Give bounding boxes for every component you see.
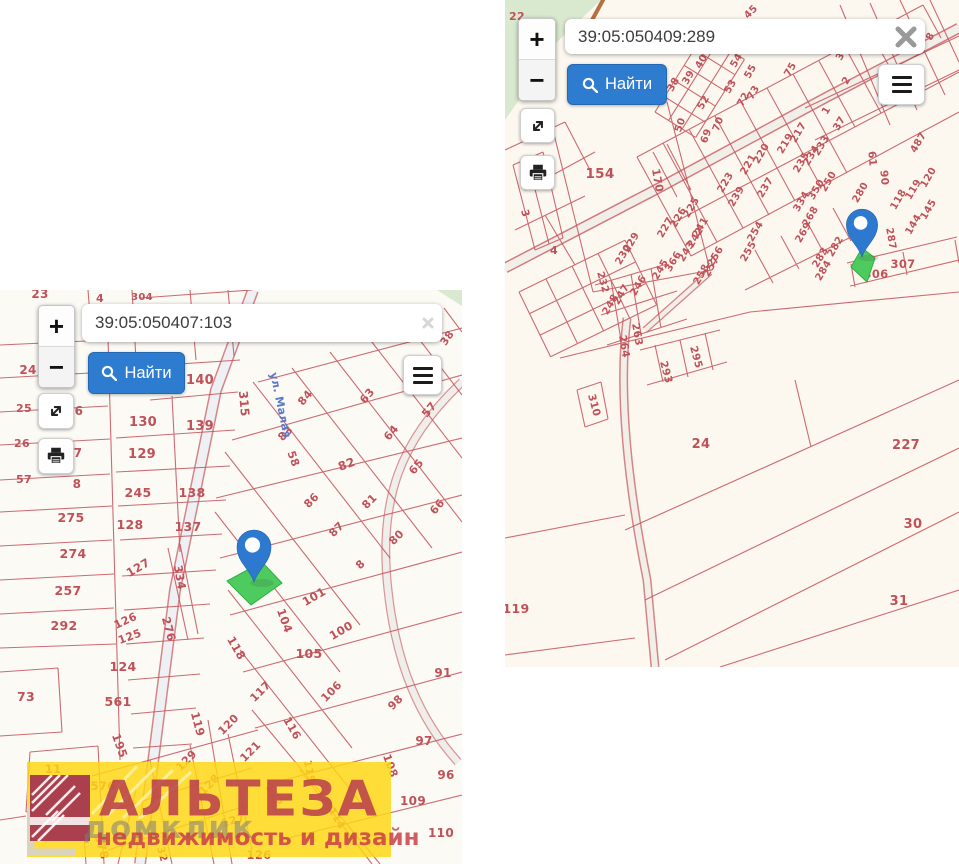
zoom-out-button[interactable]: − <box>39 346 74 387</box>
zoom-control: + − <box>38 305 75 388</box>
parcel-label: 105 <box>296 646 323 661</box>
parcel-label: 124 <box>110 659 137 674</box>
parcel-label: 292 <box>51 618 78 633</box>
layers-menu-button[interactable] <box>878 64 925 105</box>
parcel-label: 130 <box>129 415 157 430</box>
printer-icon <box>45 445 67 467</box>
parcel-label: 139 <box>186 419 214 434</box>
parcel-label: 561 <box>105 694 132 709</box>
parcel-label: 24 <box>692 437 711 452</box>
parcel-label: 227 <box>892 438 920 453</box>
parcel-label: 24 <box>19 363 36 377</box>
parcel-label: 315 <box>236 390 252 417</box>
zoom-out-label: − <box>529 65 544 96</box>
clear-search-icon[interactable] <box>420 315 436 331</box>
parcel-label: 245 <box>125 485 152 500</box>
printer-icon <box>527 162 549 184</box>
expand-arrows-icon <box>527 115 549 137</box>
hamburger-icon <box>892 76 912 93</box>
map-panel-right[interactable]: 2245405439557538537352728231375070691541… <box>505 0 959 667</box>
parcel-label: 30 <box>904 517 923 532</box>
parcel-label: 307 <box>891 257 916 271</box>
parcel-label: 25 <box>16 402 32 415</box>
fullscreen-button[interactable] <box>520 108 555 143</box>
search-input[interactable] <box>565 19 925 54</box>
hamburger-icon <box>413 367 433 384</box>
parcel-label: 97 <box>415 734 432 748</box>
find-button[interactable]: Найти <box>567 64 667 105</box>
zoom-out-label: − <box>49 352 64 383</box>
parcel-label: 57 <box>16 473 32 486</box>
parcel-label: 31 <box>890 594 909 609</box>
find-button-label: Найти <box>124 364 171 383</box>
parcel-label: 26 <box>14 437 30 450</box>
search-bar <box>565 19 925 54</box>
alteza-logo-icon <box>30 775 90 841</box>
parcel-label: 6 <box>75 404 84 418</box>
parcel-label: 73 <box>17 689 35 704</box>
parcel-label: 257 <box>55 583 82 598</box>
parcel-label: 140 <box>186 373 214 388</box>
find-button-label: Найти <box>605 75 652 94</box>
clear-search-icon[interactable] <box>893 24 919 50</box>
layers-menu-button[interactable] <box>403 355 442 395</box>
find-button[interactable]: Найти <box>88 352 185 394</box>
zoom-in-button[interactable]: + <box>39 306 74 346</box>
parcel-label: 23 <box>31 290 48 301</box>
parcel-label: 304 <box>131 292 153 303</box>
parcel-label: 4 <box>550 244 558 257</box>
print-button[interactable] <box>38 438 74 474</box>
fullscreen-button[interactable] <box>38 393 74 429</box>
parcel-label: 275 <box>58 510 85 525</box>
parcel-label: 138 <box>179 485 206 500</box>
print-button[interactable] <box>520 155 555 190</box>
parcel-label: 91 <box>434 666 451 680</box>
parcel-label: 8 <box>73 477 82 491</box>
zoom-out-button[interactable]: − <box>519 59 555 100</box>
parcel-label: 154 <box>585 166 614 182</box>
parcel-label: 61 <box>865 151 878 167</box>
parcel-label: 96 <box>437 768 454 782</box>
zoom-in-label: + <box>529 24 544 55</box>
parcel-label: 109 <box>400 794 426 808</box>
parcel-label: 137 <box>175 519 202 534</box>
parcel-label: 7 <box>74 446 83 460</box>
zoom-in-label: + <box>49 311 64 342</box>
zoom-control: + − <box>518 18 556 101</box>
parcel-label: 274 <box>60 546 87 561</box>
parcel-label: 90 <box>877 170 890 186</box>
search-input[interactable] <box>82 304 442 342</box>
search-icon <box>582 77 598 93</box>
watermark-banner: АЛЬТЕЗА домклик недвижимость и дизайн <box>27 762 391 857</box>
parcel-label: 129 <box>128 447 156 462</box>
parcel-label: 128 <box>117 517 144 532</box>
expand-arrows-icon <box>45 400 67 422</box>
search-icon <box>101 365 117 381</box>
zoom-in-button[interactable]: + <box>519 19 555 59</box>
parcel-label: 110 <box>428 826 454 840</box>
parcel-label: 119 <box>505 601 530 616</box>
page: 2245405439557538537352728231375070691541… <box>0 0 959 864</box>
watermark-tagline: недвижимость и дизайн <box>96 825 420 851</box>
search-bar <box>82 304 442 342</box>
